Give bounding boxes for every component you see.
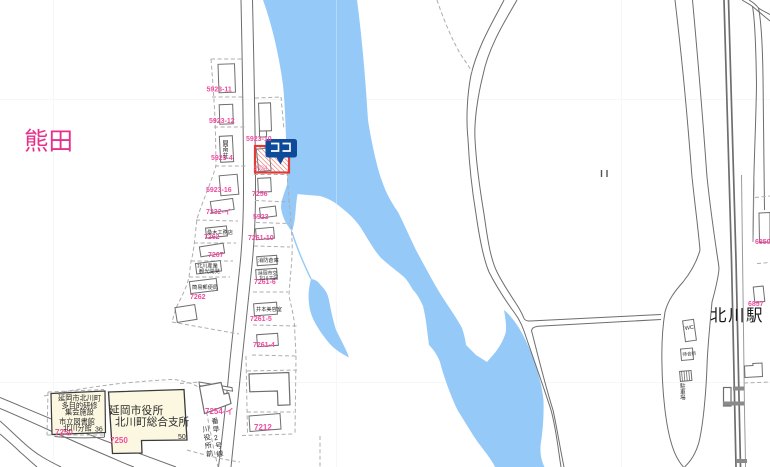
svg-text:延岡市交: 延岡市交 bbox=[258, 270, 277, 277]
svg-text:番: 番 bbox=[211, 417, 219, 426]
svg-text:36: 36 bbox=[95, 427, 103, 434]
svg-text:荘: 荘 bbox=[223, 152, 229, 160]
svg-text:5923-11: 5923-11 bbox=[207, 87, 232, 94]
svg-text:開: 開 bbox=[223, 141, 229, 148]
svg-text:7261-10: 7261-10 bbox=[248, 235, 274, 242]
svg-text:井本美容室: 井本美容室 bbox=[256, 305, 282, 313]
svg-text:桑木工務店: 桑木工務店 bbox=[207, 228, 233, 236]
svg-text:5923-16: 5923-16 bbox=[206, 187, 232, 194]
svg-text:7232-イ: 7232-イ bbox=[206, 208, 231, 216]
svg-text:7267: 7267 bbox=[208, 252, 224, 259]
svg-text:6850: 6850 bbox=[755, 239, 770, 246]
svg-text:7254-イ: 7254-イ bbox=[205, 407, 233, 416]
svg-text:号: 号 bbox=[215, 441, 223, 450]
svg-text:7261-4: 7261-4 bbox=[253, 342, 275, 349]
svg-text:早: 早 bbox=[212, 425, 220, 434]
svg-text:北川分館: 北川分館 bbox=[63, 424, 92, 433]
svg-text:北川工区: 北川工区 bbox=[259, 275, 278, 282]
svg-text:川: 川 bbox=[202, 425, 210, 434]
svg-text:5923: 5923 bbox=[253, 214, 269, 221]
svg-text:南: 南 bbox=[223, 146, 229, 154]
svg-text:集会施設: 集会施設 bbox=[65, 407, 94, 416]
svg-text:北川駅: 北川駅 bbox=[710, 306, 764, 325]
svg-text:50: 50 bbox=[178, 434, 186, 441]
svg-text:観光開発: 観光開発 bbox=[199, 267, 221, 275]
svg-text:7250: 7250 bbox=[110, 436, 128, 445]
svg-text:場: 場 bbox=[680, 394, 686, 402]
svg-text:5923-12: 5923-12 bbox=[209, 118, 235, 125]
svg-text:7262: 7262 bbox=[190, 294, 206, 301]
svg-text:5923-10: 5923-10 bbox=[246, 136, 272, 143]
svg-text:7212: 7212 bbox=[254, 423, 272, 432]
svg-text:WC: WC bbox=[684, 325, 694, 332]
svg-text:延岡市役所: 延岡市役所 bbox=[109, 404, 164, 417]
svg-text:車: 車 bbox=[680, 388, 686, 396]
svg-text:簡易郵便局: 簡易郵便局 bbox=[192, 283, 218, 291]
svg-text:7261-5: 7261-5 bbox=[250, 316, 272, 323]
svg-text:7256: 7256 bbox=[252, 191, 268, 198]
svg-text:熊田: 熊田 bbox=[24, 128, 73, 156]
svg-text:北川町総合支所: 北川町総合支所 bbox=[115, 416, 190, 429]
svg-text:消防倉庫: 消防倉庫 bbox=[258, 256, 279, 264]
svg-text:駐: 駐 bbox=[680, 382, 686, 390]
